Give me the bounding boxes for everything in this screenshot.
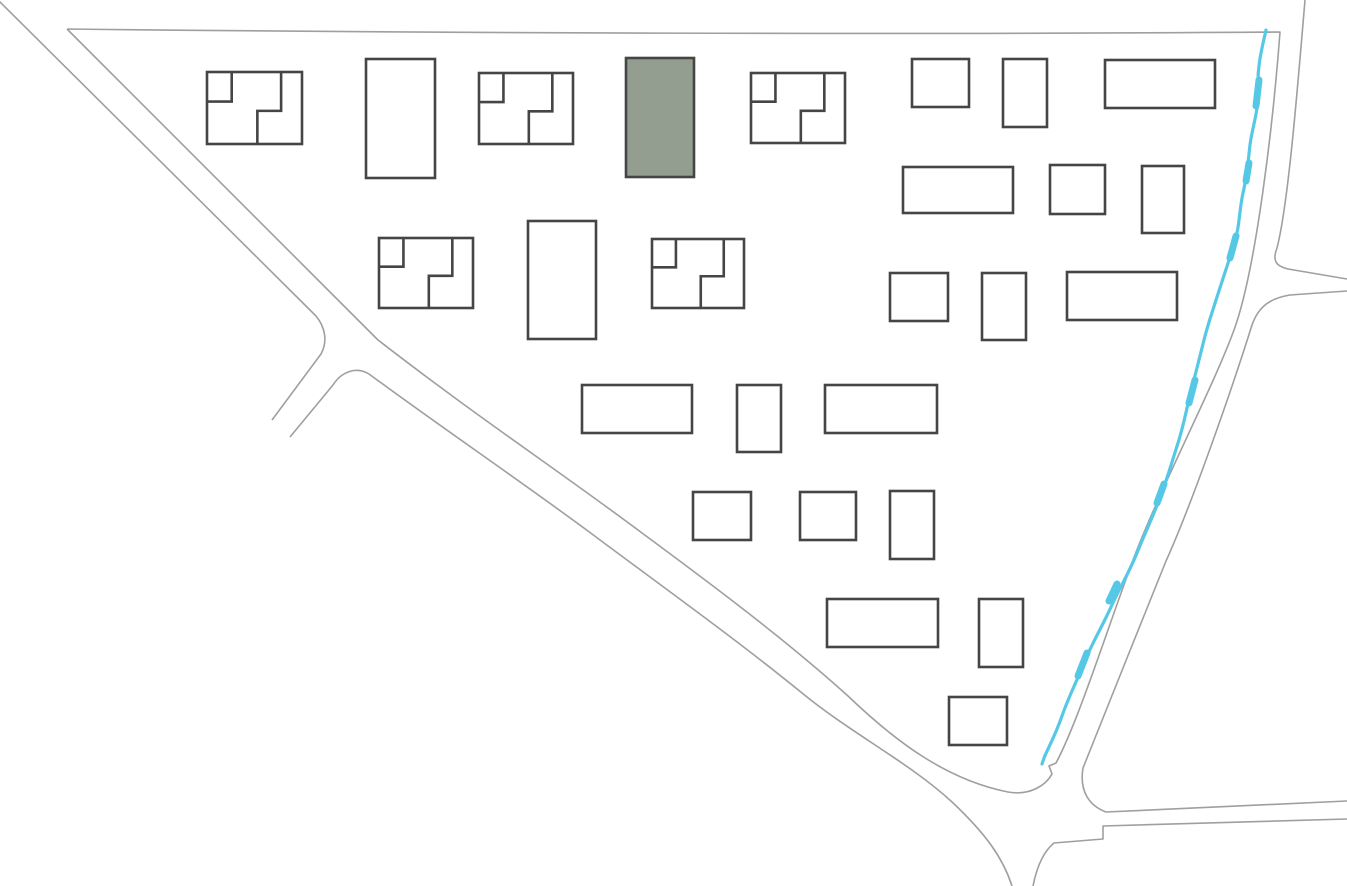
building-footprint[interactable] bbox=[737, 385, 781, 452]
building-footprint[interactable] bbox=[1067, 272, 1177, 320]
building-footprint[interactable] bbox=[652, 239, 744, 308]
building-footprint[interactable] bbox=[912, 59, 969, 107]
building-outline bbox=[949, 697, 1007, 745]
building-outline bbox=[1003, 59, 1047, 127]
building-outline bbox=[366, 59, 435, 178]
building-outline bbox=[693, 492, 751, 540]
building-footprint[interactable] bbox=[1105, 60, 1215, 108]
building-footprint[interactable] bbox=[800, 492, 856, 540]
building-outline bbox=[1067, 272, 1177, 320]
building-highlighted[interactable] bbox=[626, 58, 694, 177]
building-outline bbox=[528, 221, 596, 339]
building-footprint[interactable] bbox=[751, 73, 845, 143]
road-line-main-road-outer-edge-upper bbox=[0, 0, 325, 420]
river-wide-segment bbox=[1230, 236, 1236, 258]
building-footprint[interactable] bbox=[903, 167, 1013, 213]
building-outline bbox=[751, 73, 845, 143]
road-line-south-road-east-edge-and-east-road-south-edge bbox=[1033, 819, 1347, 886]
buildings-layer bbox=[207, 58, 1215, 745]
river-wide-segment bbox=[1256, 80, 1259, 106]
river-wide-segment bbox=[1078, 653, 1087, 676]
building-outline bbox=[982, 273, 1026, 340]
building-outline bbox=[652, 239, 744, 308]
building-footprint[interactable] bbox=[207, 72, 302, 144]
building-outline bbox=[1105, 60, 1215, 108]
building-footprint[interactable] bbox=[1003, 59, 1047, 127]
map-svg bbox=[0, 0, 1347, 886]
building-footprint[interactable] bbox=[582, 385, 692, 433]
building-outline bbox=[890, 491, 934, 559]
building-footprint[interactable] bbox=[366, 59, 435, 178]
building-outline bbox=[825, 385, 937, 433]
building-outline bbox=[737, 385, 781, 452]
road-line-ne-branch-south-edge-vertical-east-edge-and-east-road-north-edge bbox=[1082, 291, 1347, 812]
building-outline bbox=[379, 238, 473, 308]
river-layer bbox=[1042, 30, 1266, 764]
building-footprint[interactable] bbox=[479, 73, 573, 144]
building-outline bbox=[890, 273, 948, 321]
building-outline bbox=[207, 72, 302, 144]
building-outline bbox=[626, 58, 694, 177]
map-canvas[interactable] bbox=[0, 0, 1347, 886]
building-footprint[interactable] bbox=[693, 492, 751, 540]
building-outline bbox=[582, 385, 692, 433]
building-footprint[interactable] bbox=[1050, 165, 1105, 214]
building-outline bbox=[1050, 165, 1105, 214]
river-line bbox=[1042, 30, 1266, 764]
building-footprint[interactable] bbox=[979, 599, 1023, 667]
building-outline bbox=[827, 599, 938, 647]
river-wide-segment bbox=[1189, 380, 1195, 403]
building-outline bbox=[1142, 166, 1184, 233]
building-outline bbox=[912, 59, 969, 107]
building-footprint[interactable] bbox=[890, 491, 934, 559]
building-footprint[interactable] bbox=[528, 221, 596, 339]
building-outline bbox=[979, 599, 1023, 667]
building-footprint[interactable] bbox=[825, 385, 937, 433]
building-outline bbox=[479, 73, 573, 144]
river-wide-segment bbox=[1246, 163, 1249, 181]
river-wide-segment bbox=[1157, 484, 1164, 503]
road-line-vertical-road-east-edge-upper-and-ne-branch-north-edge bbox=[1275, 0, 1347, 279]
building-footprint[interactable] bbox=[890, 273, 948, 321]
building-footprint[interactable] bbox=[949, 697, 1007, 745]
building-outline bbox=[800, 492, 856, 540]
building-footprint[interactable] bbox=[1142, 166, 1184, 233]
building-footprint[interactable] bbox=[827, 599, 938, 647]
building-footprint[interactable] bbox=[379, 238, 473, 308]
building-footprint[interactable] bbox=[982, 273, 1026, 340]
building-outline bbox=[903, 167, 1013, 213]
